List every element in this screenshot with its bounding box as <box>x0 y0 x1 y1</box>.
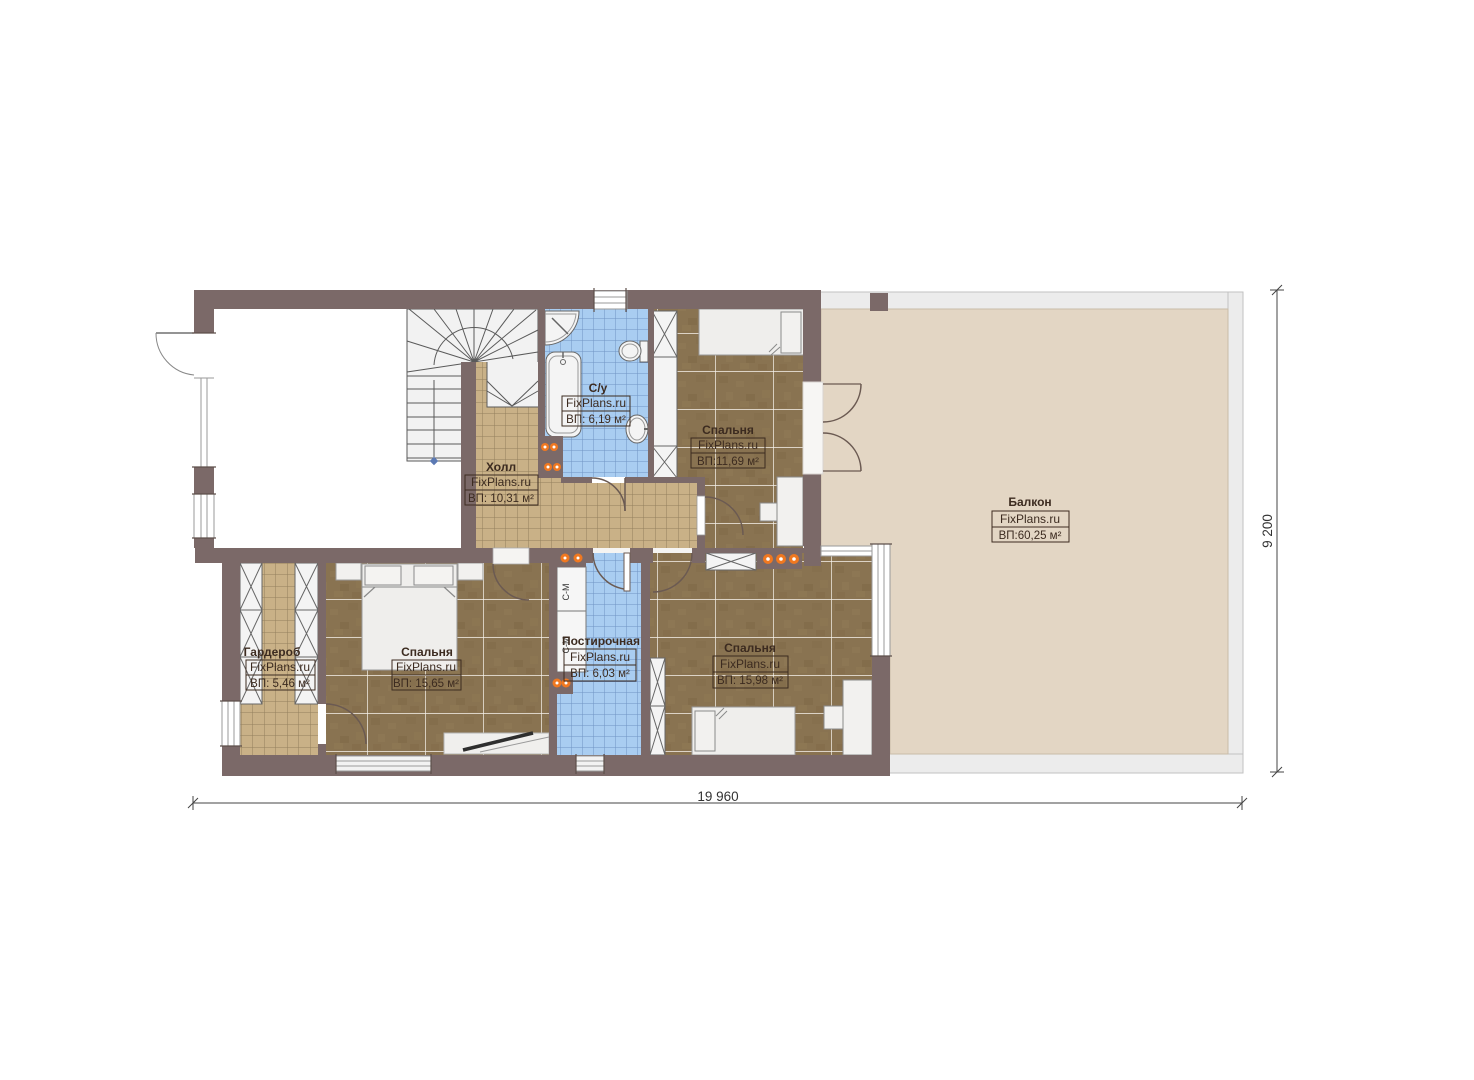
svg-text:FixPlans.ru: FixPlans.ru <box>396 660 456 674</box>
svg-text:FixPlans.ru: FixPlans.ru <box>720 657 780 671</box>
svg-text:Спальня: Спальня <box>702 423 754 437</box>
svg-text:ВП: 6,19 м²: ВП: 6,19 м² <box>566 414 626 426</box>
svg-text:9 200: 9 200 <box>1260 514 1275 548</box>
svg-text:FixPlans.ru: FixPlans.ru <box>566 396 626 410</box>
svg-text:ВП: 15,65 м²: ВП: 15,65 м² <box>393 678 459 690</box>
svg-text:FixPlans.ru: FixPlans.ru <box>698 438 758 452</box>
svg-text:С-М: С-М <box>561 584 571 601</box>
svg-text:Спальня: Спальня <box>724 641 776 655</box>
svg-text:Холл: Холл <box>486 460 516 474</box>
svg-text:ВП: 10,31 м²: ВП: 10,31 м² <box>468 493 534 505</box>
svg-text:FixPlans.ru: FixPlans.ru <box>1000 512 1060 526</box>
svg-text:Гардероб: Гардероб <box>244 645 301 659</box>
svg-text:С/у: С/у <box>589 381 608 395</box>
svg-text:Постирочная: Постирочная <box>562 634 640 648</box>
svg-text:ВП:60,25 м²: ВП:60,25 м² <box>999 530 1062 542</box>
svg-text:Балкон: Балкон <box>1008 495 1051 509</box>
svg-text:ВП: 5,46 м²: ВП: 5,46 м² <box>250 678 310 690</box>
svg-text:FixPlans.ru: FixPlans.ru <box>471 475 531 489</box>
svg-text:ВП:11,69 м²: ВП:11,69 м² <box>697 456 759 468</box>
svg-text:Спальня: Спальня <box>401 645 453 659</box>
svg-text:19 960: 19 960 <box>697 789 738 804</box>
svg-text:ВП: 6,03 м²: ВП: 6,03 м² <box>570 668 630 680</box>
svg-text:ВП: 15,98 м²: ВП: 15,98 м² <box>717 675 783 687</box>
svg-text:FixPlans.ru: FixPlans.ru <box>250 660 310 674</box>
svg-text:FixPlans.ru: FixPlans.ru <box>570 650 630 664</box>
